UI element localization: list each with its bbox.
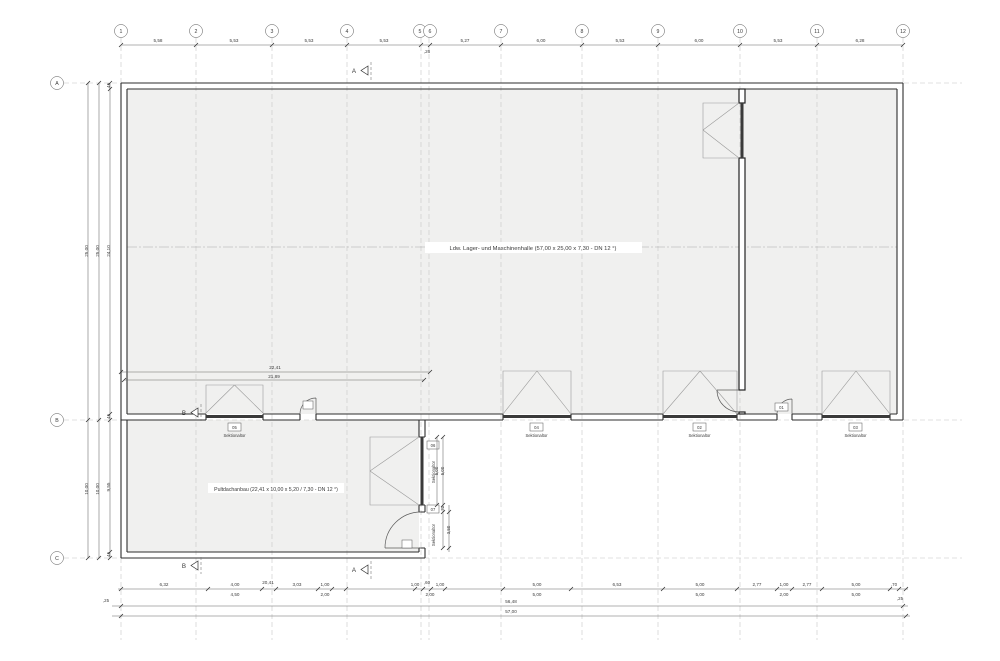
left-dim-wall-top: ,45 — [106, 82, 111, 89]
left-dim-bc-2: 10,00 — [95, 483, 100, 495]
grid-bubble-3-label: 3 — [271, 29, 274, 35]
grid-bubble-12-label: 12 — [900, 29, 906, 35]
b1-16: ,70 — [891, 582, 898, 587]
b1-11: 5,00 — [696, 582, 705, 587]
section-b-top-label: B — [182, 410, 186, 417]
b1-6: 1,00 — [411, 582, 420, 587]
b1-12: 2,77 — [753, 582, 762, 587]
section-a-top-label: A — [352, 68, 357, 75]
top-dim-3: 5,53 — [305, 38, 314, 43]
b1-4: 3,03 — [293, 582, 302, 587]
b1-10: 6,53 — [613, 582, 622, 587]
east-dim-3: ,70 — [440, 505, 445, 512]
section-a-bottom-arrow-icon — [361, 565, 368, 574]
grid-bubble-8-label: 8 — [581, 29, 584, 35]
b2-3: 5,00 — [533, 592, 542, 597]
b2-0: 4,50 — [231, 592, 240, 597]
door-03-label: Sektionaltor — [844, 433, 867, 438]
section-b-bottom: B — [182, 557, 201, 574]
b1-3: 20,41 — [262, 580, 274, 585]
floor-plan-drawing: 05 Sektionaltor 04 Sektionaltor 02 Sekti… — [0, 0, 1000, 661]
grid-bubble-1-label: 1 — [120, 29, 123, 35]
top-dim-8: 5,53 — [616, 38, 625, 43]
b1-0: ,25 — [103, 598, 110, 603]
top-dim-9: 6,00 — [695, 38, 704, 43]
b2-6: 5,00 — [852, 592, 861, 597]
b2-2: 2,00 — [426, 592, 435, 597]
section-a-top: A — [352, 62, 371, 80]
left-dim-ab-3: 24,10 — [106, 245, 111, 257]
b1-9: 5,00 — [533, 582, 542, 587]
door-03-tag: 03 — [853, 425, 858, 430]
door-07-label: Sektionaltor — [431, 523, 436, 546]
grid-bubble-C-label: C — [55, 556, 59, 562]
b2-5: 2,00 — [780, 592, 789, 597]
top-dim-2: 5,53 — [230, 38, 239, 43]
door-02-tag: 02 — [697, 425, 702, 430]
b1-5: 1,00 — [321, 582, 330, 587]
top-dim-5: ,26 — [424, 49, 431, 54]
bottom-total-inner: 56,48 — [505, 599, 517, 604]
left-dimension-chains: 25,00 25,00 24,10 10,00 10,00 9,55 ,45 ,… — [84, 81, 112, 560]
b1-17: ,25 — [897, 596, 904, 601]
left-dim-wall-mid: ,45 — [106, 413, 111, 420]
east-dim-1: 5,00 — [434, 466, 439, 475]
grid-bubble-5-label: 5 — [419, 29, 422, 35]
grid-bubble-7-label: 7 — [500, 29, 503, 35]
b1-15: 5,00 — [852, 582, 861, 587]
left-dim-bc-1: 10,00 — [84, 483, 89, 495]
door-06-tag: 06 — [431, 443, 436, 448]
b1-13: 1,00 — [780, 582, 789, 587]
section-b-bottom-arrow-icon — [191, 561, 198, 570]
left-dim-ab-2: 25,00 — [95, 245, 100, 257]
grid-bubble-4-label: 4 — [346, 29, 349, 35]
door-02-label: Sektionaltor — [688, 433, 711, 438]
top-dim-7: 6,00 — [537, 38, 546, 43]
section-a-bottom-label: A — [352, 567, 357, 574]
grid-bubbles-left: A B C — [51, 77, 64, 565]
section-a-top-arrow-icon — [361, 66, 368, 75]
bottom-total-outer: 57,00 — [505, 609, 517, 614]
grid-bubble-2-label: 2 — [195, 29, 198, 35]
b1-2: 4,00 — [231, 582, 240, 587]
annex-width-dim-2: 21,89 — [268, 374, 280, 379]
top-dim-11: 6,28 — [856, 38, 865, 43]
door-07-tag: 07 — [431, 507, 436, 512]
grid-bubble-B-label: B — [55, 418, 59, 424]
top-dim-1: 5,58 — [154, 38, 163, 43]
annex-north-door-tag-box — [303, 401, 313, 409]
b2-1: 2,00 — [321, 592, 330, 597]
interior-wall-segment-bottom — [739, 412, 745, 414]
east-dimension-chains: 5,00 5,00 ,70 3,50 — [434, 435, 451, 552]
b2-4: 5,00 — [696, 592, 705, 597]
left-dim-bc-3: 9,55 — [106, 482, 111, 491]
grid-bubble-10-label: 10 — [737, 29, 743, 35]
interior-wall-segment-top — [739, 89, 745, 103]
east-dim-4: 3,50 — [446, 525, 451, 534]
door-07-small-tag-box — [402, 540, 412, 548]
grid-bubble-11-label: 11 — [814, 29, 819, 35]
section-a-bottom: A — [352, 561, 371, 579]
top-dim-10: 5,53 — [774, 38, 783, 43]
b1-7: ,60 — [424, 580, 431, 585]
grid-bubble-A-label: A — [55, 81, 59, 87]
top-dim-6: 5,27 — [461, 38, 470, 43]
door-01-tag: 01 — [779, 405, 784, 410]
top-dimension-chain: 5,58 5,53 5,53 5,53 ,26 5,27 6,00 5,53 6… — [119, 38, 905, 54]
left-dim-ab-1: 25,00 — [84, 245, 89, 257]
door-04-tag: 04 — [534, 425, 539, 430]
grid-bubble-9-label: 9 — [657, 29, 660, 35]
door-04-label: Sektionaltor — [525, 433, 548, 438]
annex-width-dim-1: 22,41 — [269, 365, 281, 370]
top-dim-4: 5,53 — [380, 38, 389, 43]
floor-plan-page: 05 Sektionaltor 04 Sektionaltor 02 Sekti… — [0, 0, 1000, 661]
interior-wall-segment-mid — [739, 158, 745, 390]
hall-label: Ldw. Lager- und Maschinenhalle (57,00 x … — [450, 246, 617, 252]
bubble-circles-top — [115, 25, 910, 38]
bottom-dimension-chains: ,25 6,32 4,00 20,41 3,03 1,00 1,00 ,60 1… — [103, 580, 910, 618]
door-05-tag: 05 — [232, 425, 237, 430]
door-05-label: Sektionaltor — [223, 433, 246, 438]
left-dim-wall-bottom: ,45 — [106, 551, 111, 558]
b1-1: 6,32 — [160, 582, 169, 587]
section-b-bottom-label: B — [182, 563, 186, 570]
annex-label: Pultdachanbau (22,41 x 10,00 x 5,20 / 7,… — [214, 487, 338, 493]
b1-8: 1,00 — [436, 582, 445, 587]
east-dim-2: 5,00 — [440, 466, 445, 475]
grid-bubbles-top: 1 2 3 4 5 6 7 8 9 10 11 12 — [115, 25, 910, 38]
b1-14: 2,77 — [803, 582, 812, 587]
grid-bubble-6-label: 6 — [429, 29, 432, 35]
